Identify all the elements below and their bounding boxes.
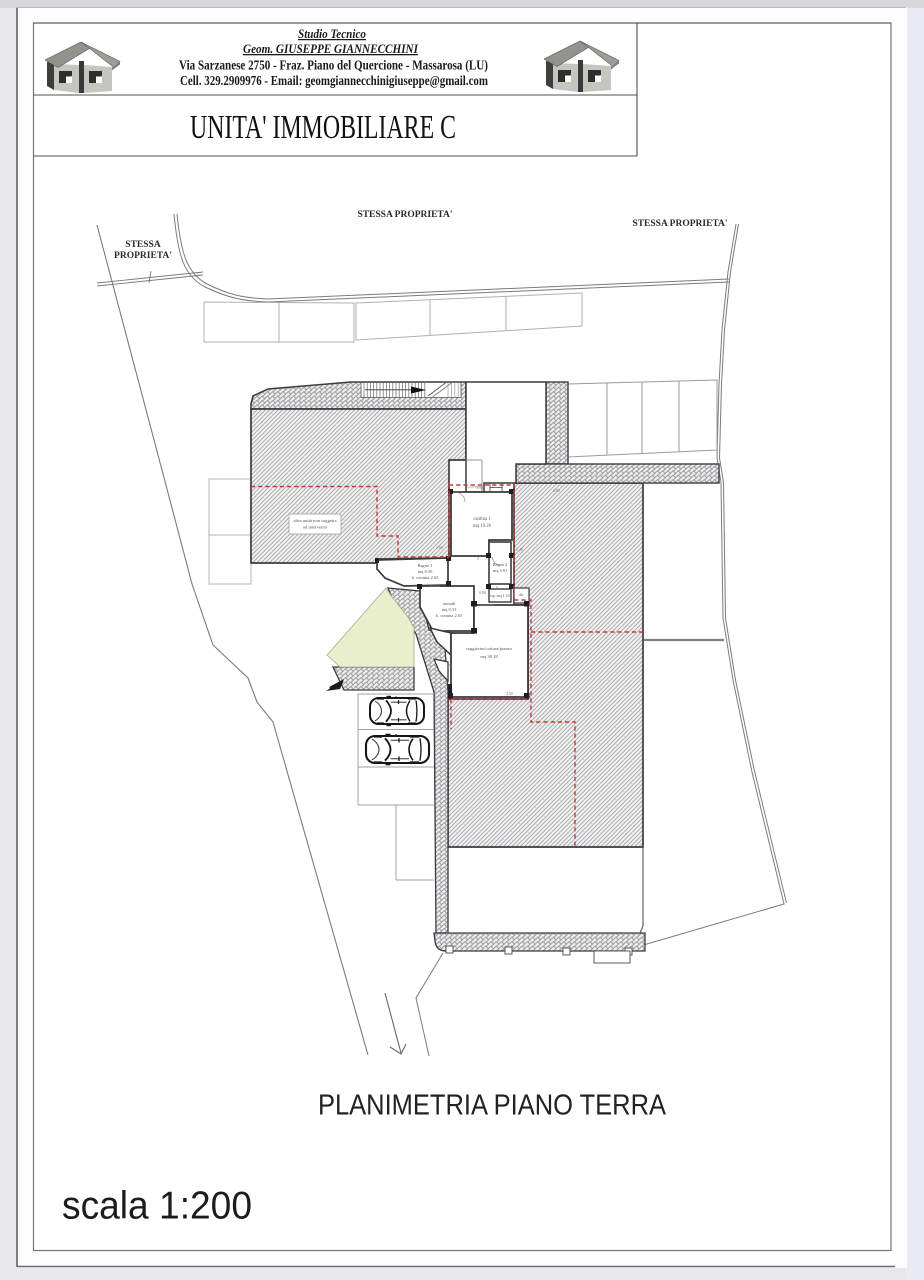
svg-text:PROPRIETA': PROPRIETA' [114,251,172,261]
svg-text:Bagno 1: Bagno 1 [417,563,432,568]
svg-text:0.80: 0.80 [479,590,486,595]
svg-text:2.60: 2.60 [436,545,443,550]
svg-text:STESSA PROPRIETA': STESSA PROPRIETA' [357,210,452,220]
svg-text:mq 3.81: mq 3.81 [493,568,507,573]
svg-text:h. contina 2.65: h. contina 2.65 [436,613,463,618]
svg-text:ad intervento: ad intervento [303,525,328,530]
svg-text:cantina 1: cantina 1 [473,517,491,522]
svg-text:Geom. GIUSEPPE GIANNECCHINI: Geom. GIUSEPPE GIANNECCHINI [243,41,419,56]
svg-text:scala 1:200: scala 1:200 [62,1185,252,1228]
svg-text:h. contina 2.65: h. contina 2.65 [412,575,439,580]
svg-text:rip. mq 1.53: rip. mq 1.53 [490,593,510,598]
svg-text:altra unità non soggetta: altra unità non soggetta [294,518,337,523]
svg-text:STESSA PROPRIETA': STESSA PROPRIETA' [632,219,727,229]
svg-text:mq 38.18: mq 38.18 [480,654,498,659]
svg-text:4.85: 4.85 [553,488,560,493]
svg-text:STESSA: STESSA [125,240,161,250]
svg-text:Via Sarzanese 2750 - Fraz. Pia: Via Sarzanese 2750 - Fraz. Piano del Que… [179,58,488,73]
svg-text:mq 8.50: mq 8.50 [418,569,434,574]
svg-text:Cell. 329.2909976 - Email: geo: Cell. 329.2909976 - Email: geomgiannecch… [180,73,488,88]
svg-text:PLANIMETRIA PIANO TERRA: PLANIMETRIA PIANO TERRA [318,1090,667,1122]
svg-text:UNITA' IMMOBILIARE C: UNITA' IMMOBILIARE C [190,109,456,146]
svg-text:1.40: 1.40 [516,547,523,552]
svg-text:3.54: 3.54 [476,485,483,490]
svg-text:mq 9.33: mq 9.33 [442,607,458,612]
svg-text:Studio Tecnico: Studio Tecnico [298,27,366,41]
svg-text:4.50: 4.50 [506,691,513,696]
svg-text:mq 16.26: mq 16.26 [473,524,492,529]
svg-text:dis.: dis. [519,593,524,597]
svg-text:armadi: armadi [443,601,456,606]
svg-text:soggiorno/cottura/pranzo: soggiorno/cottura/pranzo [466,646,513,651]
